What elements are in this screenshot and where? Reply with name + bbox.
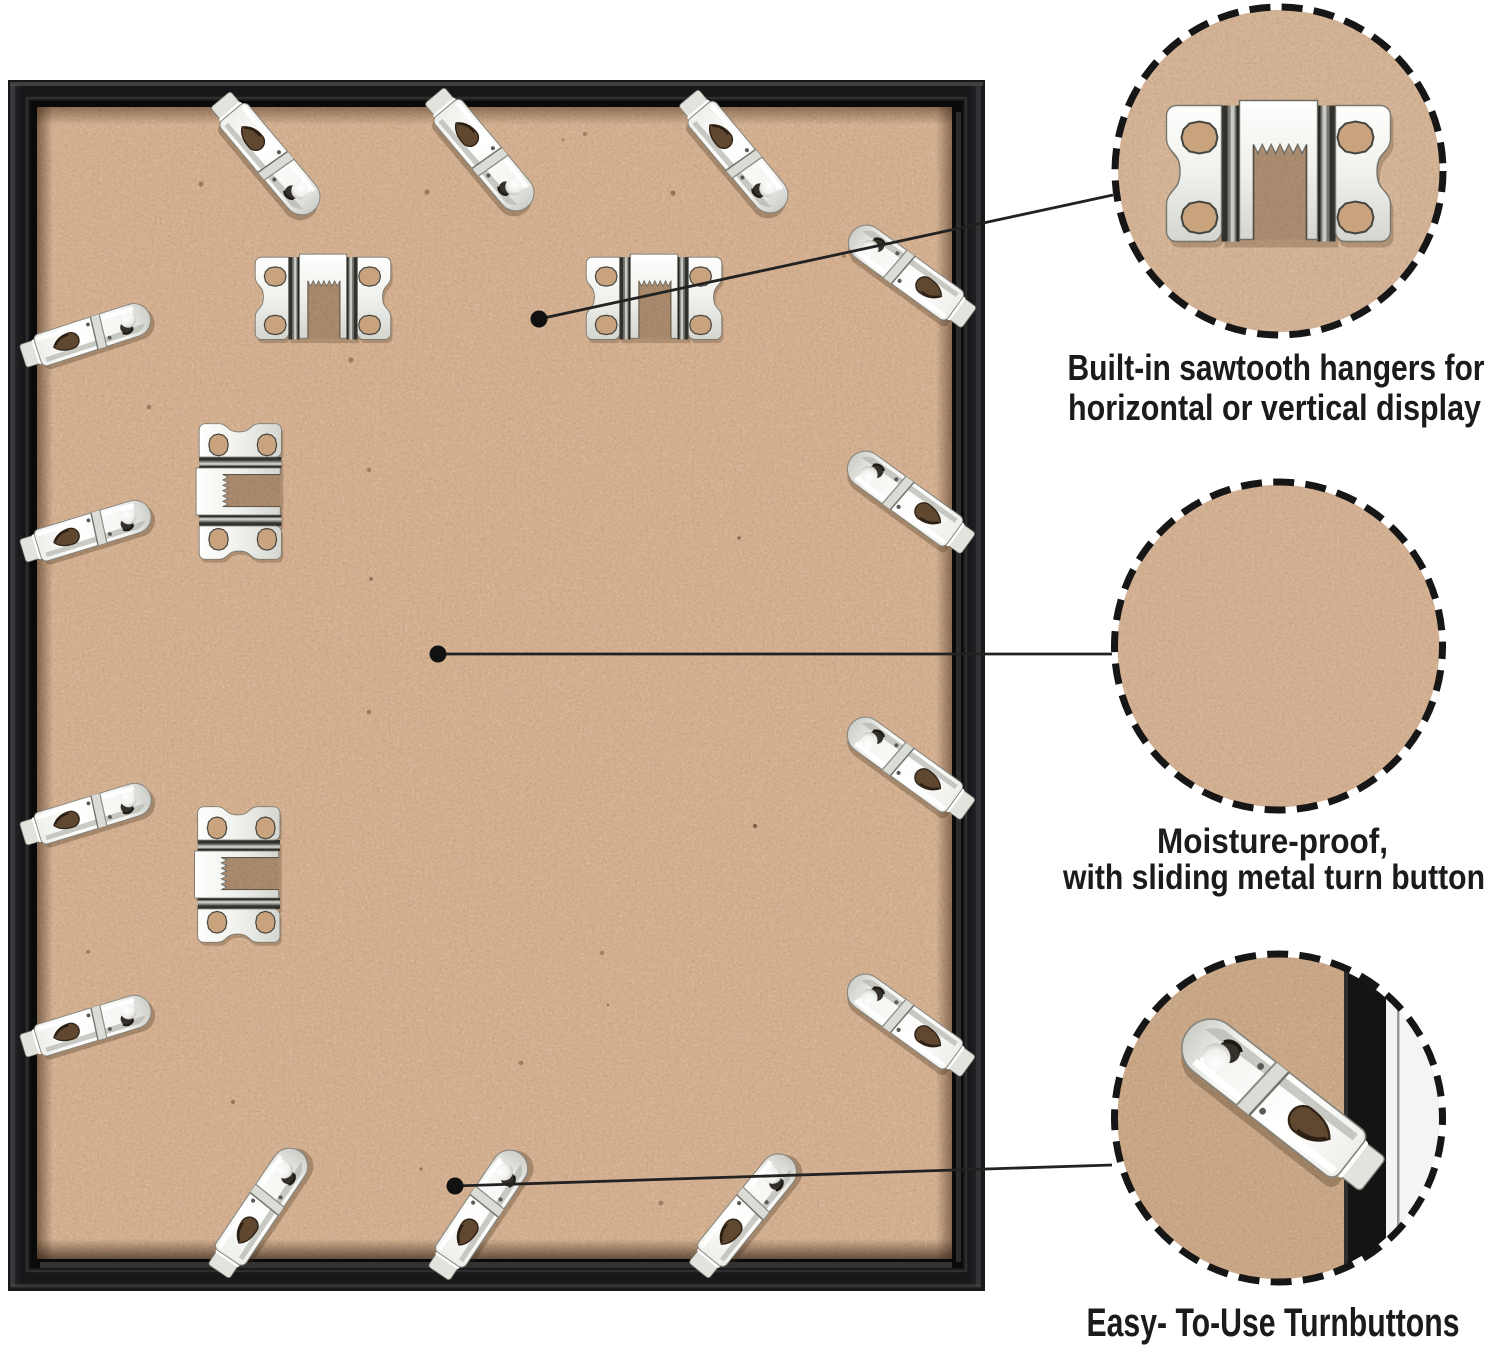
svg-text:Easy- To-Use Turnbuttons: Easy- To-Use Turnbuttons xyxy=(1087,1301,1460,1345)
svg-text:Built-in sawtooth hangers for: Built-in sawtooth hangers for xyxy=(1068,347,1485,388)
svg-text:Moisture-proof,: Moisture-proof, xyxy=(1157,822,1388,861)
svg-text:with sliding metal turn button: with sliding metal turn button xyxy=(1062,858,1485,897)
svg-text:horizontal or vertical display: horizontal or vertical display xyxy=(1068,387,1481,428)
